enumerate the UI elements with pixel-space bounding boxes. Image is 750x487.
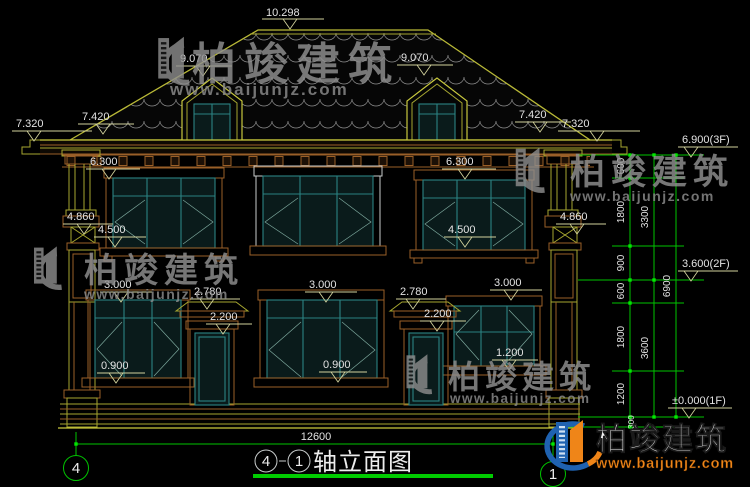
level-floor3: 6.900(3F) [682, 134, 730, 146]
brand-logo: 柏竣建筑 www.baijunjz.com [547, 420, 734, 472]
level-eave-right: 7.420 [519, 109, 547, 121]
level-f2wintop-right: 6.300 [446, 156, 474, 168]
level-f1wintop-center: 3.000 [309, 279, 337, 291]
axis-1-label: 1 [549, 466, 557, 483]
level-f2wintop-left: 6.300 [90, 156, 118, 168]
title-text: 轴立面图 [313, 449, 413, 476]
watermark-name: 柏竣建筑 [448, 359, 596, 395]
f2-window-left [100, 168, 228, 261]
watermark-logo-icon [34, 246, 62, 287]
level-f2sill-right: 4.500 [448, 224, 476, 236]
level-cornice-left: 7.320 [16, 118, 44, 130]
dim-6900: 6900 [662, 274, 673, 297]
level-cornice-right: 7.320 [562, 118, 590, 130]
dentil-band [66, 156, 590, 166]
level-roof-mid-right: 9.070 [401, 52, 429, 64]
dim-3300: 3300 [640, 205, 651, 228]
level-f1sill-high-right: 1.200 [496, 347, 524, 359]
dim-3600: 3600 [640, 336, 651, 359]
level-ridge: 10.298 [266, 7, 300, 19]
drawing-title: 4 1 轴立面图 [253, 449, 493, 478]
title-axis-to: 1 [295, 453, 303, 470]
level-f1wintop-right: 3.000 [494, 277, 522, 289]
drawing-canvas: 600 1800 900 600 1800 1200 300 3300 3600… [0, 0, 750, 487]
dim-900: 900 [616, 254, 627, 271]
watermark-name: 柏竣建筑 [570, 152, 734, 192]
watermark-url: www.baijunjz.com [169, 80, 349, 99]
level-eave-left: 7.420 [82, 111, 110, 123]
level-f1sill-center: 0.900 [323, 359, 351, 371]
level-floor1: ±0.000(1F) [672, 395, 726, 407]
watermark-url: www.baijunjz.com [83, 286, 229, 302]
title-axis-from: 4 [262, 453, 270, 470]
level-canopy-right: 2.780 [400, 286, 428, 298]
title-underline [253, 474, 493, 478]
level-doortop-left: 2.200 [210, 311, 238, 323]
cad-elevation-drawing: 600 1800 900 600 1800 1200 300 3300 3600… [0, 0, 750, 487]
f2-window-center [250, 166, 386, 255]
level-floor2: 3.600(2F) [682, 258, 730, 270]
level-f1sill-left: 0.900 [101, 360, 129, 372]
f1-window-left [82, 290, 194, 387]
brand-name: 柏竣建筑 [596, 422, 728, 457]
dim-12600: 12600 [301, 431, 332, 443]
dim-600-b: 600 [616, 282, 627, 299]
axis-4-label: 4 [72, 460, 80, 477]
level-belt-left: 4.860 [67, 211, 95, 223]
watermark-left: 柏竣建筑 www.baijunjz.com [34, 246, 244, 302]
watermark-name: 柏竣建筑 [84, 251, 244, 290]
dim-1200: 1200 [616, 382, 627, 405]
axis-bubble-4: 4 [64, 456, 89, 481]
level-belt-right: 4.860 [560, 211, 588, 223]
level-f2sill-left: 4.500 [98, 224, 126, 236]
brand-url: www.baijunjz.com [595, 456, 734, 472]
watermark-url: www.baijunjz.com [449, 391, 591, 406]
plinth-steps [58, 404, 582, 428]
level-doortop-right: 2.200 [424, 308, 452, 320]
watermark-url: www.baijunjz.com [569, 188, 715, 204]
dim-1800-b: 1800 [616, 325, 627, 348]
